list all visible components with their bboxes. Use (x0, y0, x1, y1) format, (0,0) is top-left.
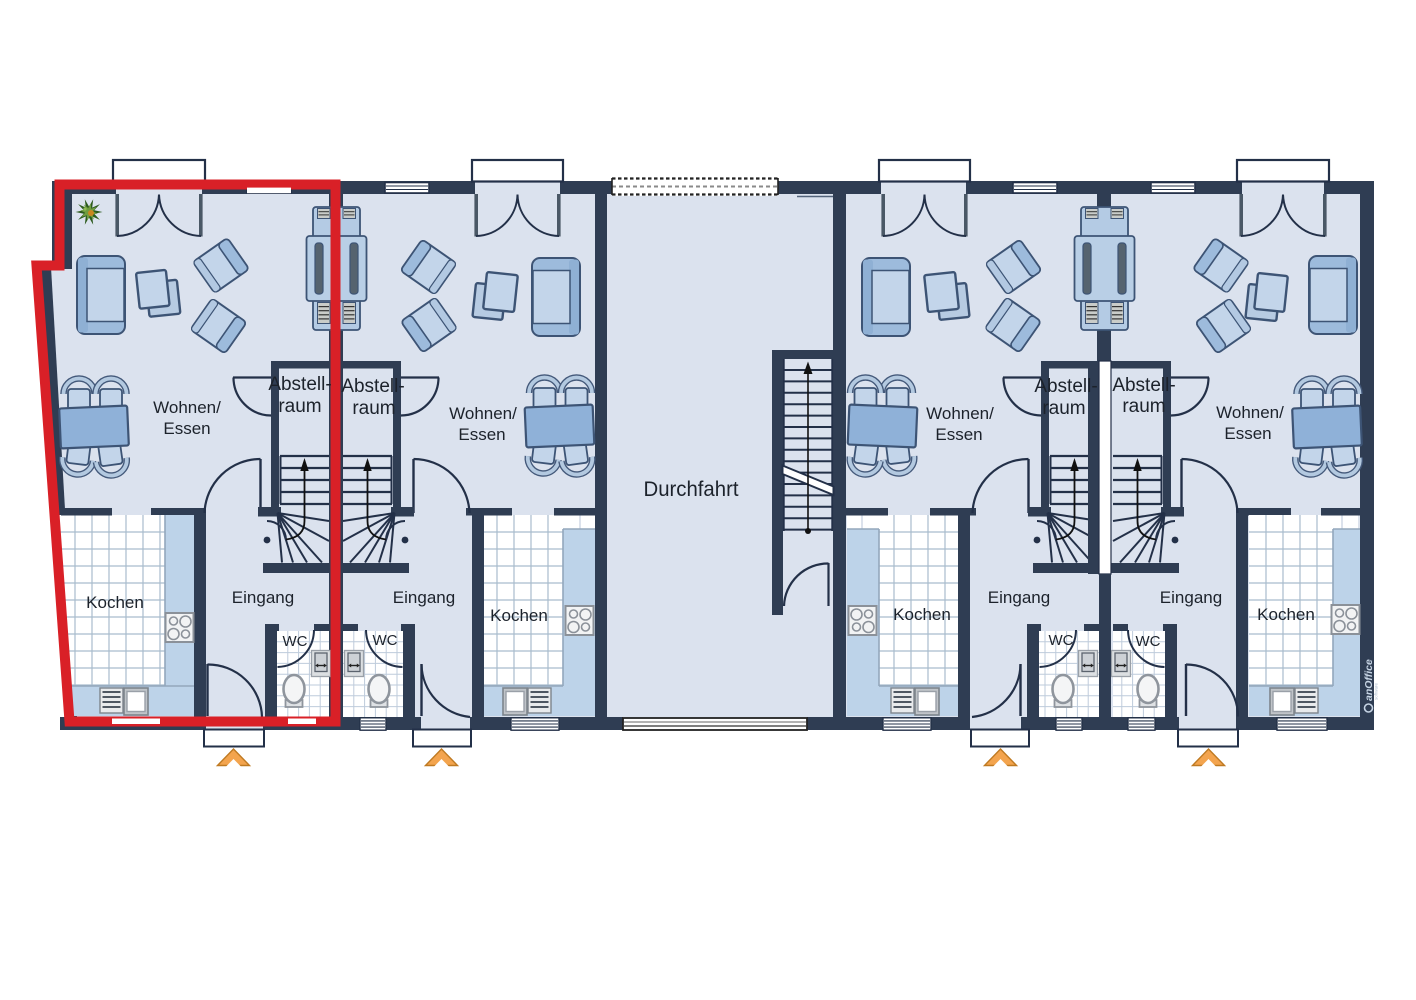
svg-text:Kochen: Kochen (1257, 605, 1315, 624)
svg-text:Wohnen/: Wohnen/ (449, 404, 517, 423)
svg-text:Wohnen/: Wohnen/ (926, 404, 994, 423)
svg-text:raum: raum (1042, 398, 1085, 419)
svg-text:Essen: Essen (458, 425, 505, 444)
svg-text:Abstell-: Abstell- (268, 374, 331, 395)
svg-text:Eingang: Eingang (232, 588, 294, 607)
svg-text:WC: WC (373, 632, 398, 649)
svg-text:WC: WC (1136, 633, 1161, 650)
svg-text:Durchfahrt: Durchfahrt (644, 477, 739, 501)
svg-text:WC: WC (1049, 632, 1074, 649)
svg-text:Eingang: Eingang (988, 588, 1050, 607)
svg-text:Wohnen/: Wohnen/ (1216, 403, 1284, 422)
svg-text:raum: raum (352, 398, 395, 419)
svg-text:Kochen: Kochen (490, 606, 548, 625)
svg-text:software: software (1374, 682, 1379, 700)
svg-text:raum: raum (278, 396, 321, 417)
svg-text:WC: WC (283, 633, 308, 650)
svg-text:Eingang: Eingang (1160, 588, 1222, 607)
svg-text:Wohnen/: Wohnen/ (153, 398, 221, 417)
svg-text:Essen: Essen (1224, 424, 1271, 443)
svg-text:raum: raum (1122, 396, 1165, 417)
svg-text:Abstell-: Abstell- (1034, 376, 1097, 397)
svg-text:Abstell-: Abstell- (1112, 375, 1175, 396)
svg-text:Eingang: Eingang (393, 588, 455, 607)
svg-text:Kochen: Kochen (86, 593, 144, 612)
svg-text:Abstell-: Abstell- (341, 376, 404, 397)
svg-text:Kochen: Kochen (893, 605, 951, 624)
svg-text:Essen: Essen (935, 425, 982, 444)
svg-text:Essen: Essen (163, 419, 210, 438)
